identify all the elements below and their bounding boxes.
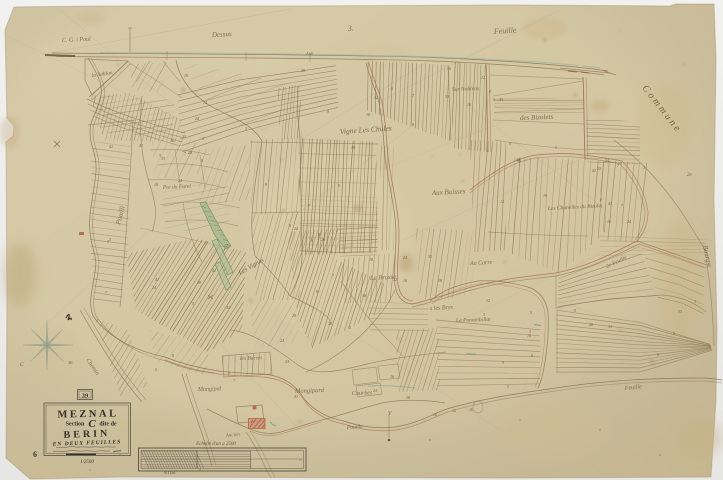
svg-text:5: 5: [201, 158, 203, 163]
svg-text:8: 8: [172, 353, 174, 358]
svg-text:8: 8: [600, 197, 602, 202]
svg-text:Dessus: Dessus: [211, 30, 233, 39]
svg-text:9: 9: [311, 238, 313, 243]
svg-text:12: 12: [486, 298, 490, 303]
svg-text:39: 39: [82, 393, 89, 400]
svg-text:12: 12: [203, 100, 207, 105]
svg-text:9: 9: [316, 289, 318, 294]
svg-text:28: 28: [292, 313, 296, 318]
svg-text:12: 12: [374, 95, 378, 100]
svg-text:5: 5: [657, 352, 659, 357]
svg-text:5: 5: [555, 145, 557, 150]
svg-text:Pouille: Pouille: [346, 424, 364, 431]
svg-text:5: 5: [155, 367, 157, 372]
svg-text:16: 16: [170, 138, 174, 143]
svg-text:3: 3: [159, 153, 161, 158]
svg-text:des Bizolets: des Bizolets: [520, 113, 554, 122]
svg-text:9: 9: [265, 182, 267, 187]
svg-text:8: 8: [489, 89, 491, 94]
svg-text:33: 33: [608, 324, 612, 329]
svg-text:28: 28: [188, 150, 192, 155]
svg-text:Courbes: Courbes: [352, 390, 373, 397]
svg-text:12: 12: [452, 408, 456, 413]
svg-text:s les Brys: s les Brys: [430, 305, 454, 312]
svg-text:41: 41: [294, 394, 298, 399]
svg-text:Echelle d'un a 2500: Echelle d'un a 2500: [195, 442, 236, 447]
svg-text:18: 18: [543, 193, 547, 198]
svg-text:18: 18: [438, 278, 442, 283]
svg-text:24: 24: [285, 359, 289, 364]
svg-text:Mongipard: Mongipard: [294, 387, 325, 395]
svg-text:9: 9: [502, 360, 504, 365]
svg-text:33: 33: [226, 305, 230, 310]
svg-text:5: 5: [507, 384, 509, 389]
svg-text:24: 24: [178, 178, 182, 183]
svg-text:16: 16: [184, 73, 188, 78]
svg-text:3: 3: [483, 312, 485, 317]
svg-text:24: 24: [152, 285, 156, 290]
svg-text:24: 24: [403, 255, 407, 260]
svg-text:16: 16: [403, 278, 407, 283]
svg-text:9: 9: [338, 183, 340, 188]
svg-text:12: 12: [500, 199, 504, 204]
svg-text:33: 33: [161, 156, 165, 161]
svg-text:8: 8: [289, 223, 291, 228]
svg-text:41: 41: [212, 268, 216, 273]
svg-text:3: 3: [109, 237, 111, 242]
svg-text:33: 33: [445, 94, 449, 99]
svg-text:36: 36: [68, 360, 73, 365]
svg-text:3: 3: [202, 136, 204, 141]
svg-text:24: 24: [627, 219, 631, 224]
svg-text:16: 16: [467, 102, 471, 107]
svg-text:33: 33: [678, 309, 682, 314]
svg-text:9: 9: [673, 331, 675, 336]
svg-text:3: 3: [245, 126, 247, 131]
svg-text:Aub: Aub: [305, 51, 314, 56]
svg-text:3: 3: [694, 299, 696, 304]
svg-text:9: 9: [574, 308, 576, 313]
svg-text:41: 41: [592, 168, 596, 173]
svg-text:18: 18: [406, 395, 410, 400]
svg-text:33: 33: [182, 134, 186, 139]
svg-text:La Pontanbillat: La Pontanbillat: [455, 317, 491, 324]
svg-text:16: 16: [447, 66, 451, 71]
svg-text:41: 41: [139, 143, 143, 148]
svg-text:5: 5: [391, 86, 393, 91]
svg-text:41: 41: [608, 201, 612, 206]
svg-text:24: 24: [373, 388, 377, 393]
svg-text:dite de: dite de: [99, 422, 117, 428]
svg-text:28: 28: [589, 322, 593, 327]
svg-text:8: 8: [531, 353, 533, 358]
svg-text:5: 5: [349, 325, 351, 330]
svg-text:28: 28: [301, 68, 305, 73]
svg-text:33: 33: [428, 254, 432, 259]
svg-text:18: 18: [154, 182, 158, 187]
svg-text:24: 24: [195, 116, 199, 121]
svg-text:16: 16: [517, 158, 521, 163]
svg-text:les Barres: les Barres: [240, 355, 262, 362]
svg-text:Section: Section: [66, 422, 85, 428]
svg-text:6: 6: [33, 450, 37, 459]
svg-text:18: 18: [351, 145, 355, 150]
svg-text:3.: 3.: [346, 24, 354, 34]
svg-text:16: 16: [469, 407, 473, 412]
svg-text:24: 24: [605, 158, 609, 163]
svg-text:18: 18: [366, 112, 370, 117]
svg-text:16: 16: [362, 293, 366, 298]
svg-text:16: 16: [433, 412, 437, 417]
svg-text:28: 28: [321, 237, 325, 242]
svg-text:Sur Noblens: Sur Noblens: [452, 86, 479, 93]
svg-text:Au Carre: Au Carre: [469, 260, 493, 267]
svg-text:5: 5: [530, 310, 532, 315]
svg-text:33: 33: [499, 97, 503, 102]
svg-text:41: 41: [109, 144, 113, 149]
svg-text:3: 3: [529, 329, 531, 334]
svg-text:9: 9: [327, 109, 329, 114]
svg-text:12: 12: [481, 75, 485, 80]
svg-text:24: 24: [294, 226, 298, 231]
svg-text:5: 5: [192, 301, 194, 306]
svg-text:18: 18: [369, 257, 373, 262]
svg-text:28: 28: [328, 321, 332, 326]
svg-text:41: 41: [155, 277, 159, 282]
svg-text:2e: 2e: [687, 173, 693, 178]
svg-text:28: 28: [197, 280, 201, 285]
svg-text:24: 24: [280, 338, 284, 343]
svg-text:Mongipal: Mongipal: [197, 386, 222, 393]
svg-text:16: 16: [607, 219, 611, 224]
svg-text:3: 3: [643, 165, 645, 170]
svg-text:12: 12: [224, 243, 228, 248]
svg-text:BERIN: BERIN: [63, 428, 110, 441]
svg-text:5: 5: [493, 97, 495, 102]
svg-text:9: 9: [509, 141, 511, 146]
svg-text:8: 8: [318, 232, 320, 237]
svg-text:12: 12: [393, 277, 397, 282]
svg-text:Feuille: Feuille: [493, 25, 518, 36]
svg-text:33: 33: [597, 166, 601, 171]
svg-text:9: 9: [412, 122, 414, 127]
svg-text:1/2500: 1/2500: [80, 460, 94, 465]
svg-text:16: 16: [390, 374, 394, 379]
